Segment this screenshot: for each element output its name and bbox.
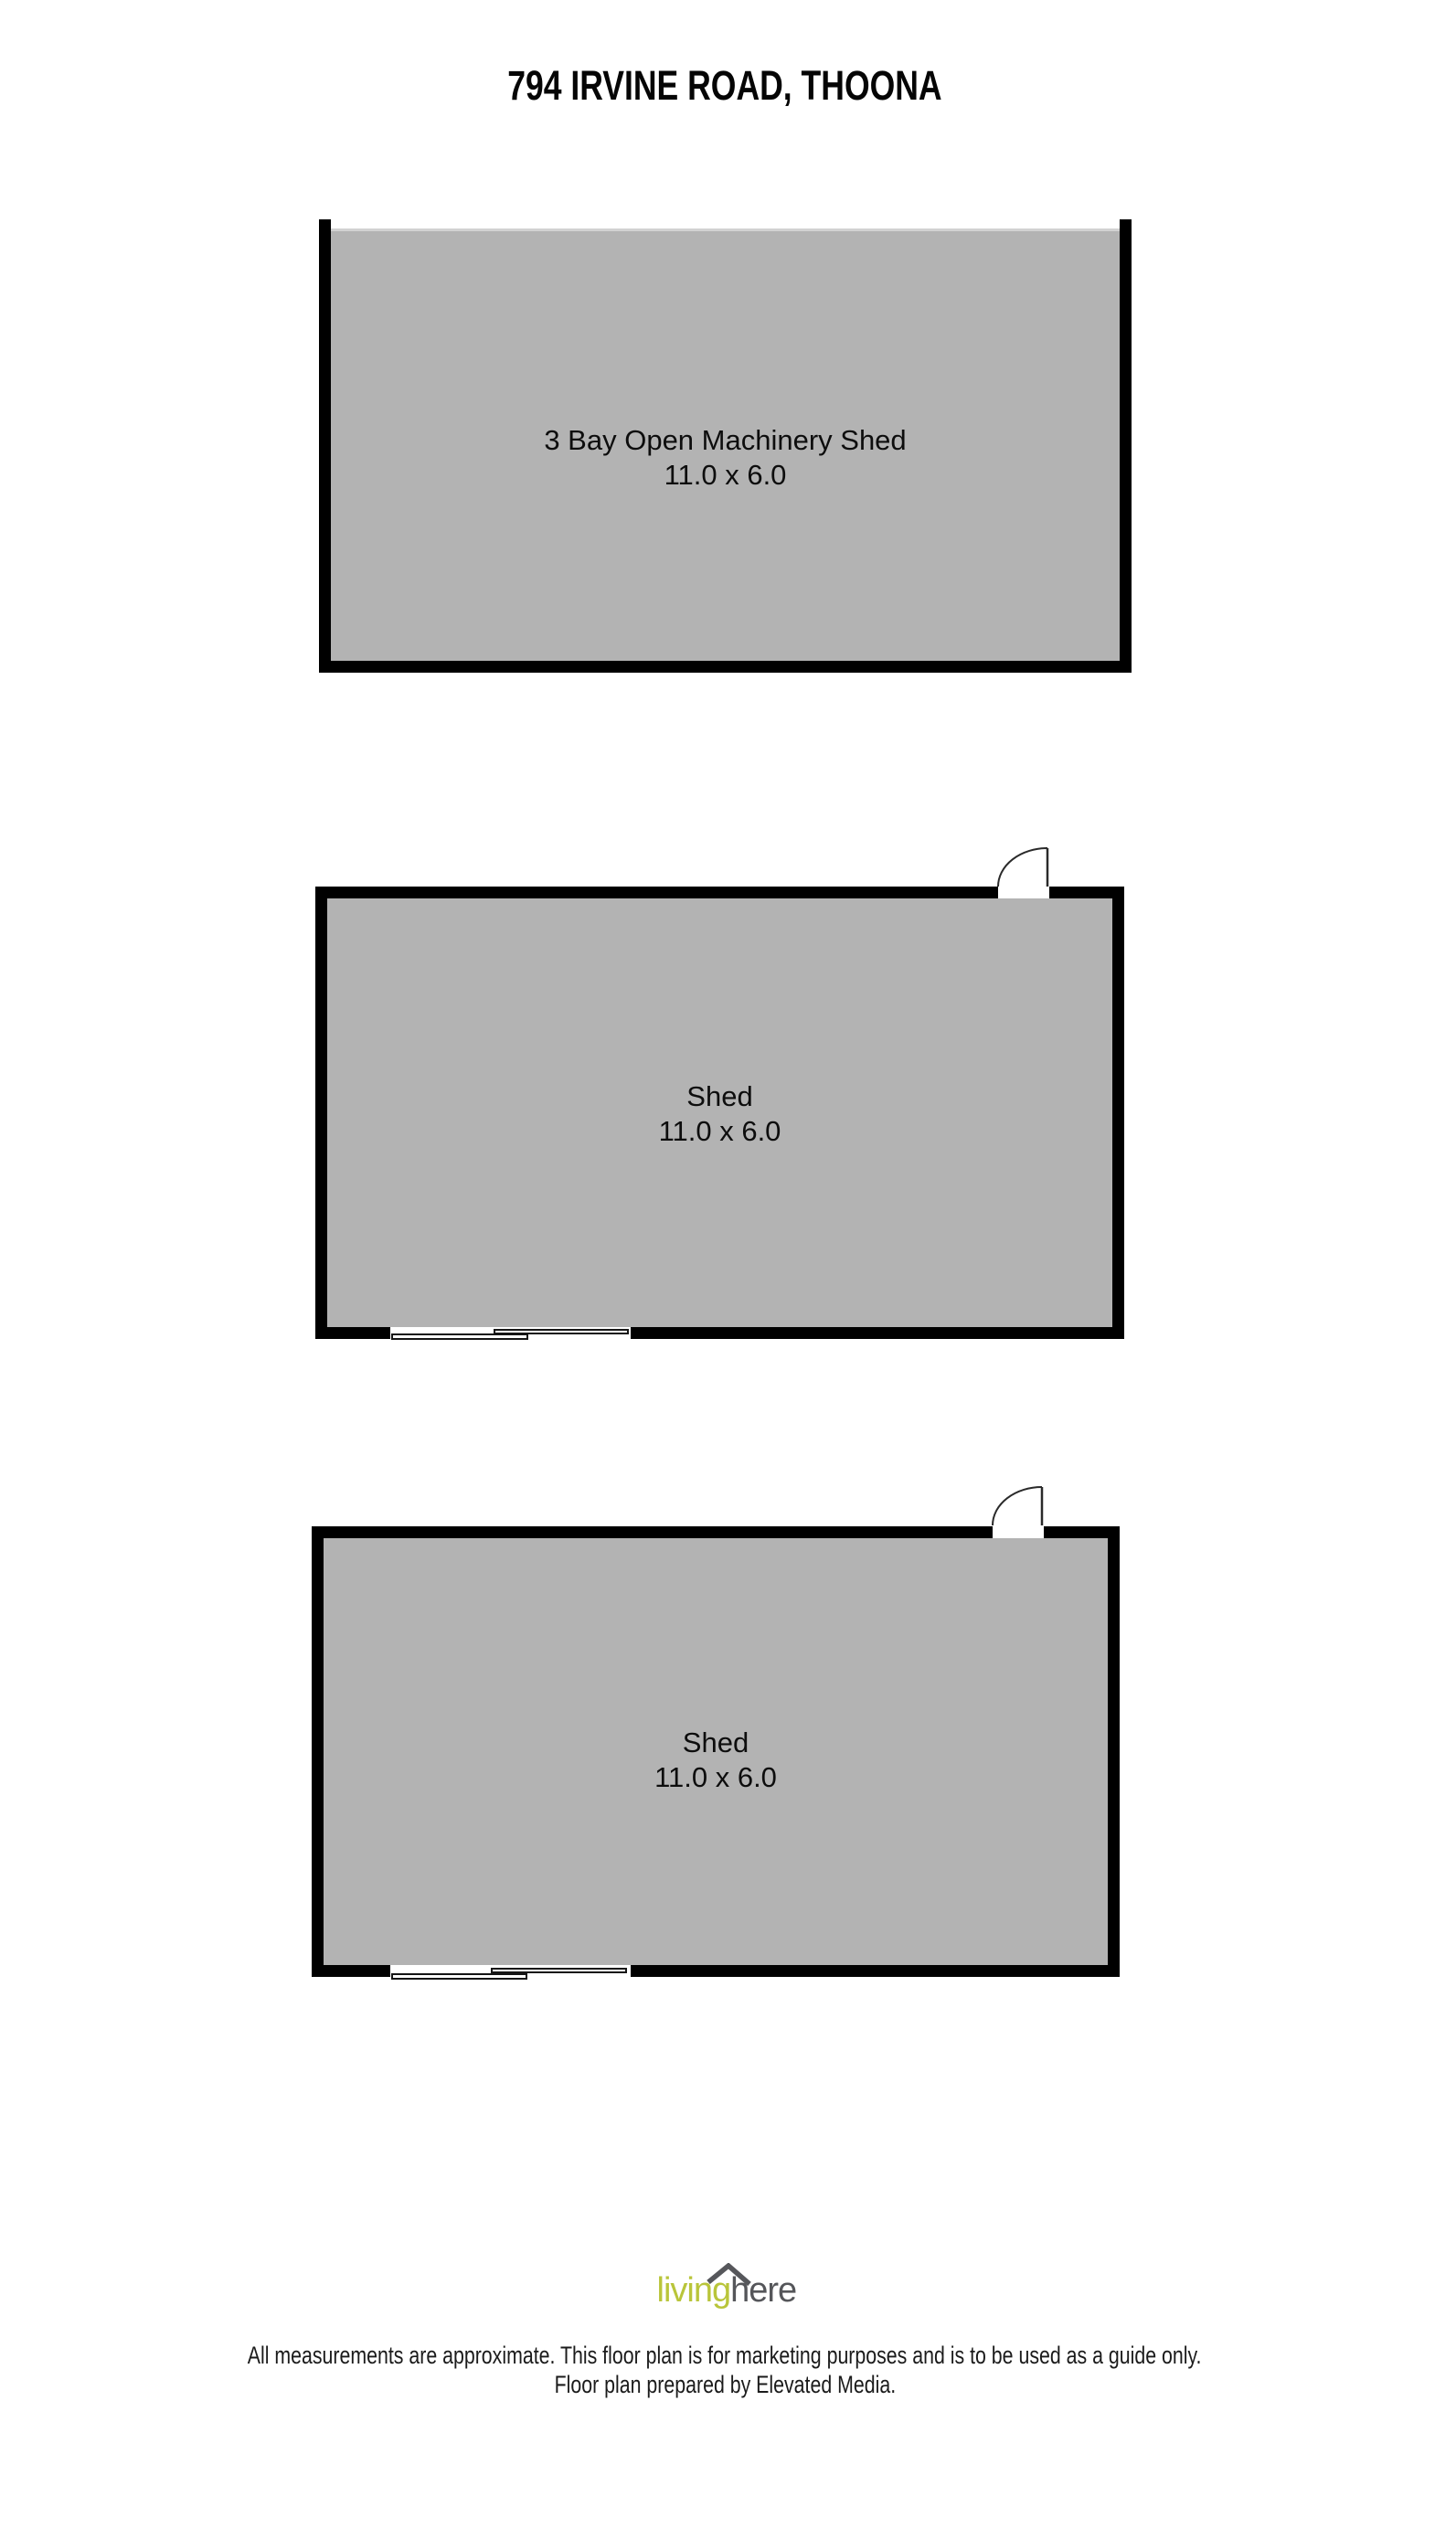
room-shed-bottom: Shed 11.0 x 6.0 (312, 1526, 1120, 1977)
floor-plan-page: 794 IRVINE ROAD, THOONA 3 Bay Open Machi… (0, 0, 1456, 2539)
room-dimensions: 11.0 x 6.0 (315, 1114, 1124, 1149)
disclaimer-line-1: All measurements are approximate. This f… (0, 2341, 1450, 2370)
door-swing-icon (991, 1485, 1046, 1527)
wall-bottom-left-segment (312, 1965, 390, 1977)
room-name: Shed (312, 1726, 1120, 1760)
wall-bottom-right-segment (631, 1327, 1124, 1339)
room-dimensions: 11.0 x 6.0 (312, 1760, 1120, 1795)
sliding-door-panel-left (391, 1973, 527, 1980)
door-swing-icon (996, 846, 1051, 888)
logo-living-text: living (657, 2271, 731, 2310)
room-name: 3 Bay Open Machinery Shed (319, 423, 1132, 458)
room-dimensions: 11.0 x 6.0 (319, 458, 1132, 493)
disclaimer-line-2: Floor plan prepared by Elevated Media. (0, 2370, 1450, 2399)
room-shed-middle: Shed 11.0 x 6.0 (315, 887, 1124, 1339)
room-label: Shed 11.0 x 6.0 (312, 1726, 1120, 1795)
page-title-text: 794 IRVINE ROAD, THOONA (507, 65, 941, 106)
room-machinery-shed: 3 Bay Open Machinery Shed 11.0 x 6.0 (319, 219, 1132, 673)
logo-text: livinghere (657, 2272, 797, 2309)
room-label: Shed 11.0 x 6.0 (315, 1079, 1124, 1149)
logo-here-text: here (730, 2271, 796, 2310)
room-label: 3 Bay Open Machinery Shed 11.0 x 6.0 (319, 423, 1132, 493)
room-name: Shed (315, 1079, 1124, 1114)
livinghere-logo: livinghere (657, 2263, 800, 2316)
disclaimer: All measurements are approximate. This f… (0, 2341, 1450, 2399)
wall-bottom-right-segment (631, 1965, 1120, 1977)
wall-top-left-segment (312, 1526, 993, 1538)
wall-bottom-left-segment (315, 1327, 390, 1339)
page-title: 794 IRVINE ROAD, THOONA (0, 65, 1450, 106)
sliding-door-panel-left (391, 1333, 528, 1340)
wall-top-left-segment (315, 887, 998, 898)
wall-bottom (319, 661, 1132, 673)
